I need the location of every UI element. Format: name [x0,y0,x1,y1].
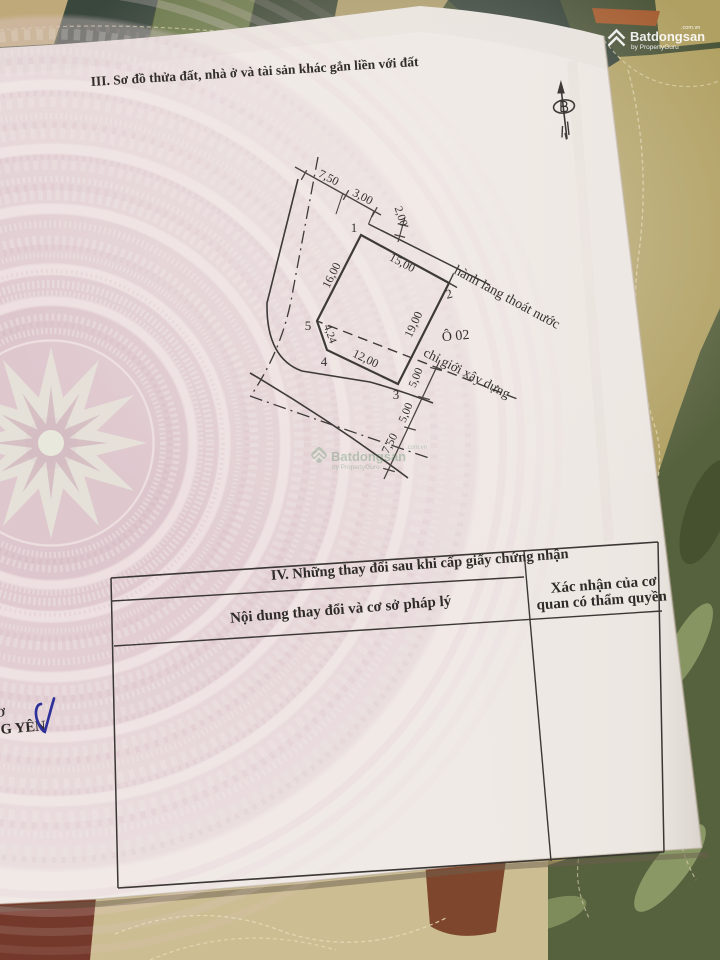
svg-text:Batdongsan: Batdongsan [630,29,705,44]
svg-text:5: 5 [305,318,312,333]
svg-text:Batdongsan: Batdongsan [331,449,406,464]
svg-text:1: 1 [351,220,358,235]
svg-text:3: 3 [393,387,400,402]
svg-text:.com.vn: .com.vn [681,25,700,31]
svg-text:by PropertyGuru: by PropertyGuru [631,44,679,51]
svg-text:by PropertyGuru: by PropertyGuru [332,464,380,471]
svg-text:4: 4 [321,354,328,369]
svg-text:.com.vn: .com.vn [406,445,427,451]
